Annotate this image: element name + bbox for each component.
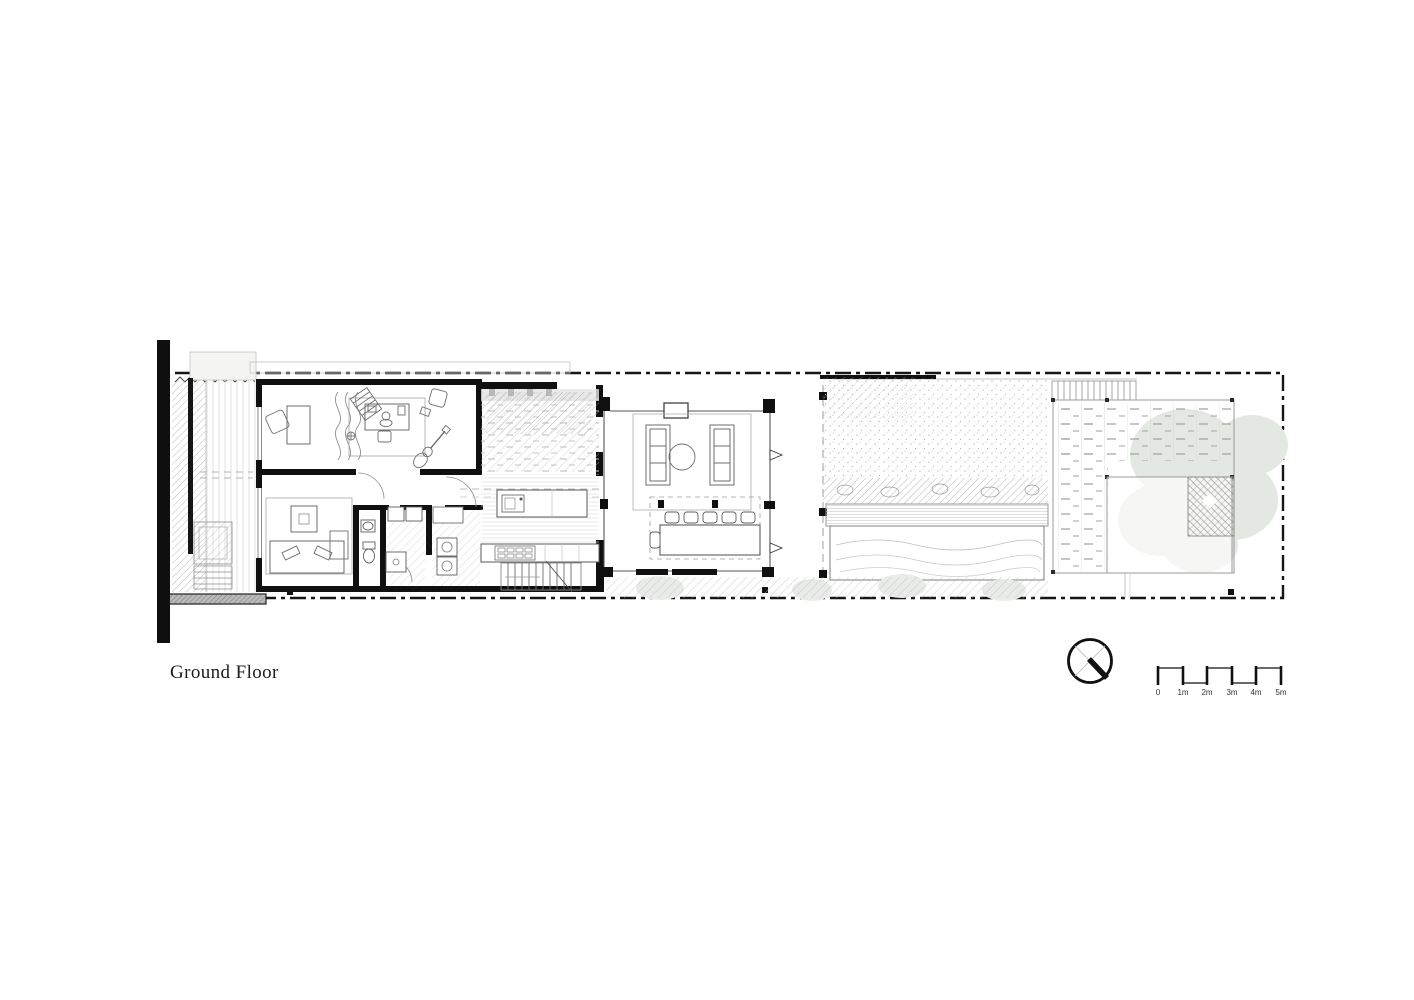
living-rug <box>633 414 751 510</box>
pavilion <box>599 397 782 577</box>
toilet-cistern <box>363 542 375 549</box>
sofa-right <box>710 425 734 485</box>
fireplace <box>664 403 688 418</box>
front-garden <box>172 378 258 592</box>
coffee-table <box>669 444 695 470</box>
bedroom <box>266 498 352 574</box>
square-table <box>291 506 317 532</box>
scale-label-0: 0 <box>1156 688 1161 697</box>
pool-water <box>830 526 1044 580</box>
armchair <box>265 409 290 434</box>
entry-landing <box>194 522 232 564</box>
plan-title: Ground Floor <box>170 662 279 683</box>
desk <box>365 404 409 430</box>
kitchen-bench <box>481 544 599 562</box>
bathroom <box>361 520 375 563</box>
dryer <box>437 557 457 575</box>
street-wall <box>157 340 170 643</box>
floor-plan-drawing: Ground Floor 0 1m 2m 3m 4m <box>0 0 1414 1000</box>
study-rug <box>349 398 425 456</box>
rear-stair <box>1052 381 1136 400</box>
kitchen-island <box>497 490 587 517</box>
roof-outlines <box>190 352 1137 380</box>
scale-bar: 0 1m 2m 3m 4m 5m <box>1156 666 1287 697</box>
scale-label-3m: 3m <box>1226 688 1237 697</box>
bedroom-rug <box>266 498 352 574</box>
bath-room <box>386 507 425 585</box>
sofa <box>270 531 348 573</box>
kitchen <box>481 474 599 562</box>
shrub-band <box>823 478 1048 504</box>
garden-wall <box>188 378 193 554</box>
scale-label-4m: 4m <box>1250 688 1261 697</box>
dining-table <box>660 525 760 555</box>
garage <box>1051 381 1288 598</box>
floor-plan-sheet: Ground Floor 0 1m 2m 3m 4m <box>0 0 1414 1000</box>
scale-label-1m: 1m <box>1177 688 1188 697</box>
desk-chair <box>378 431 391 442</box>
scale-label-5m: 5m <box>1275 688 1286 697</box>
guitar <box>411 424 453 471</box>
study-room <box>265 388 453 471</box>
laundry <box>432 507 480 586</box>
north-arrow-icon <box>1069 640 1112 683</box>
scale-label-2m: 2m <box>1201 688 1212 697</box>
sofa-left <box>646 425 670 485</box>
armchair-2 <box>428 388 448 408</box>
washer <box>437 538 457 556</box>
toilet <box>364 549 375 563</box>
south-planting <box>606 574 1048 601</box>
side-table <box>287 406 310 444</box>
pool <box>826 504 1048 580</box>
